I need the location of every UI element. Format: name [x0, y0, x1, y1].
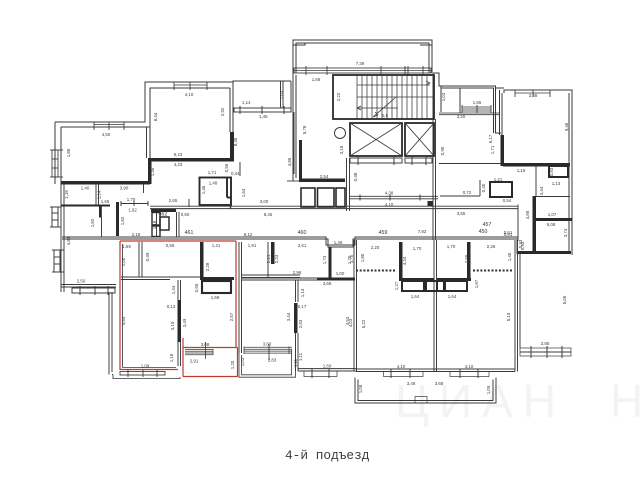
svg-text:1,18: 1,18	[152, 220, 157, 229]
svg-text:1,69: 1,69	[211, 295, 220, 300]
svg-text:3,08: 3,08	[201, 342, 210, 347]
svg-text:5,19: 5,19	[506, 312, 511, 321]
svg-text:1,91: 1,91	[248, 243, 257, 248]
svg-text:3,00: 3,00	[260, 199, 269, 204]
svg-text:4,50: 4,50	[102, 132, 111, 137]
svg-text:0,83: 0,83	[549, 167, 554, 176]
svg-text:2,61: 2,61	[298, 243, 307, 248]
svg-text:1,70: 1,70	[349, 254, 354, 263]
svg-text:2,22: 2,22	[336, 92, 341, 101]
svg-text:1,71: 1,71	[490, 145, 495, 154]
svg-text:4,85: 4,85	[287, 157, 292, 166]
svg-text:1,40: 1,40	[507, 252, 512, 261]
svg-text:3,49: 3,49	[182, 318, 187, 327]
svg-text:1,18: 1,18	[64, 190, 69, 199]
svg-text:1,11: 1,11	[298, 352, 303, 361]
svg-text:1,16: 1,16	[517, 168, 526, 173]
svg-text:4,23: 4,23	[174, 162, 183, 167]
svg-text:2,96: 2,96	[293, 270, 302, 275]
svg-text:0,81: 0,81	[504, 232, 513, 237]
svg-text:2,65: 2,65	[464, 254, 469, 263]
svg-text:1,82: 1,82	[90, 218, 95, 227]
svg-text:1,60: 1,60	[323, 364, 332, 369]
svg-text:1,73: 1,73	[322, 255, 327, 264]
svg-text:ЦИАН: ЦИАН	[395, 375, 566, 427]
svg-text:2,85: 2,85	[541, 341, 550, 346]
svg-text:0,98: 0,98	[353, 172, 358, 181]
svg-text:1,13: 1,13	[552, 181, 561, 186]
svg-text:0,65: 0,65	[194, 283, 199, 292]
svg-text:3,90: 3,90	[120, 186, 129, 191]
svg-text:0,55: 0,55	[224, 163, 229, 172]
svg-text:5,06: 5,06	[562, 295, 567, 304]
svg-text:6,23: 6,23	[174, 152, 183, 157]
svg-text:9,46: 9,46	[564, 122, 569, 131]
svg-text:6,17: 6,17	[488, 134, 493, 143]
svg-text:4,10: 4,10	[397, 364, 406, 369]
svg-text:1,03: 1,03	[279, 90, 284, 99]
svg-text:2,65: 2,65	[169, 198, 178, 203]
svg-text:3,44: 3,44	[539, 186, 544, 195]
svg-text:1,14: 1,14	[242, 100, 251, 105]
svg-text:8,12: 8,12	[244, 232, 253, 237]
svg-text:0,93: 0,93	[520, 241, 525, 250]
svg-text:457: 457	[483, 222, 492, 228]
svg-text:8,46: 8,46	[233, 137, 238, 146]
svg-text:1,07: 1,07	[548, 212, 557, 217]
svg-text:0,44: 0,44	[231, 171, 240, 176]
svg-text:462: 462	[159, 212, 168, 218]
svg-text:2,50: 2,50	[77, 279, 86, 284]
svg-text:459: 459	[379, 230, 388, 236]
svg-text:2,21: 2,21	[266, 254, 271, 263]
svg-text:4,10: 4,10	[465, 364, 474, 369]
svg-text:1,64: 1,64	[411, 294, 420, 299]
svg-text:2,83: 2,83	[268, 358, 277, 363]
svg-text:1,03: 1,03	[240, 357, 245, 366]
svg-text:5,5: 5,5	[382, 113, 389, 118]
svg-text:1,41: 1,41	[212, 243, 221, 248]
svg-text:2,92: 2,92	[220, 107, 225, 116]
svg-text:3,48: 3,48	[529, 93, 538, 98]
svg-text:1,49: 1,49	[334, 240, 343, 245]
svg-text:1,62: 1,62	[128, 208, 137, 213]
svg-text:3,20: 3,20	[457, 114, 466, 119]
svg-text:1,18: 1,18	[169, 353, 174, 362]
svg-text:8,44: 8,44	[153, 112, 158, 121]
svg-text:0,99: 0,99	[145, 252, 150, 261]
svg-text:460: 460	[298, 230, 307, 236]
svg-text:1,34: 1,34	[171, 285, 176, 294]
svg-text:4,85: 4,85	[525, 210, 530, 219]
svg-text:0,13: 0,13	[167, 304, 176, 309]
svg-text:1,70: 1,70	[413, 246, 422, 251]
svg-text:1,08: 1,08	[358, 384, 363, 393]
svg-text:1,70: 1,70	[127, 197, 136, 202]
svg-text:2,28: 2,28	[205, 262, 210, 271]
svg-text:4,81: 4,81	[66, 236, 71, 245]
svg-text:1,13: 1,13	[300, 288, 305, 297]
svg-text:1,65: 1,65	[101, 199, 110, 204]
svg-text:4,03: 4,03	[348, 318, 353, 327]
svg-text:0,55: 0,55	[166, 243, 175, 248]
svg-text:3,60: 3,60	[263, 342, 272, 347]
svg-text:4,34: 4,34	[402, 256, 407, 265]
svg-text:1,21: 1,21	[494, 177, 503, 182]
svg-text:450: 450	[479, 229, 488, 235]
svg-text:1,00: 1,00	[336, 271, 345, 276]
svg-text:2,23: 2,23	[274, 254, 279, 263]
svg-text:1,09: 1,09	[141, 364, 150, 369]
svg-text:1,68: 1,68	[312, 77, 321, 82]
svg-text:1,45: 1,45	[259, 114, 268, 119]
svg-text:7,39: 7,39	[356, 61, 365, 66]
svg-text:7,82: 7,82	[418, 229, 427, 234]
svg-text:5,78: 5,78	[302, 125, 307, 134]
svg-text:4-й подъезд: 4-й подъезд	[285, 448, 370, 463]
svg-text:1,88: 1,88	[66, 148, 71, 157]
svg-text:1,87: 1,87	[474, 279, 479, 288]
svg-text:2,91: 2,91	[190, 359, 199, 364]
svg-text:2,57: 2,57	[229, 312, 234, 321]
svg-text:0,54: 0,54	[503, 198, 512, 203]
svg-text:1,03: 1,03	[441, 92, 446, 101]
svg-text:1,80: 1,80	[360, 253, 365, 262]
svg-text:3,66: 3,66	[323, 281, 332, 286]
svg-text:0,40: 0,40	[481, 183, 486, 192]
svg-text:3,65: 3,65	[457, 211, 466, 216]
svg-text:4,10: 4,10	[185, 92, 194, 97]
svg-text:1,64: 1,64	[448, 294, 457, 299]
svg-text:1,20: 1,20	[230, 360, 235, 369]
svg-text:5,08: 5,08	[547, 222, 556, 227]
svg-text:1,54: 1,54	[241, 188, 246, 197]
svg-text:1,82: 1,82	[120, 216, 125, 225]
svg-text:2,00: 2,00	[121, 257, 126, 266]
svg-text:2,18: 2,18	[132, 232, 141, 237]
svg-text:2,20: 2,20	[371, 245, 380, 250]
svg-text:1,70: 1,70	[447, 244, 456, 249]
svg-text:0,95: 0,95	[440, 146, 445, 155]
svg-text:1,59: 1,59	[122, 244, 131, 249]
svg-text:0,17: 0,17	[298, 304, 307, 309]
svg-text:461: 461	[185, 230, 194, 236]
svg-text:1,40: 1,40	[81, 186, 90, 191]
svg-text:8,45: 8,45	[264, 212, 273, 217]
svg-text:0,60: 0,60	[181, 212, 190, 217]
svg-text:4,38: 4,38	[385, 191, 394, 196]
svg-text:1,46: 1,46	[150, 167, 155, 176]
svg-text:1,27: 1,27	[394, 281, 399, 290]
svg-text:2,54: 2,54	[320, 174, 329, 179]
svg-text:1,46: 1,46	[201, 185, 206, 194]
svg-text:2,26: 2,26	[487, 244, 496, 249]
svg-text:1,14: 1,14	[97, 190, 102, 199]
svg-text:4,54: 4,54	[121, 316, 126, 325]
svg-text:3,19: 3,19	[170, 321, 175, 330]
svg-text:Н: Н	[610, 375, 640, 427]
svg-text:1,71: 1,71	[208, 170, 217, 175]
svg-text:5,22: 5,22	[361, 319, 366, 328]
svg-text:2,83: 2,83	[298, 319, 303, 328]
svg-text:3,44: 3,44	[286, 312, 291, 321]
svg-text:3,15: 3,15	[339, 145, 344, 154]
svg-text:4,10: 4,10	[385, 202, 394, 207]
svg-text:3,74: 3,74	[563, 228, 568, 237]
svg-text:1,48: 1,48	[209, 181, 218, 186]
svg-text:0,72: 0,72	[463, 190, 472, 195]
svg-text:1,65: 1,65	[473, 100, 482, 105]
